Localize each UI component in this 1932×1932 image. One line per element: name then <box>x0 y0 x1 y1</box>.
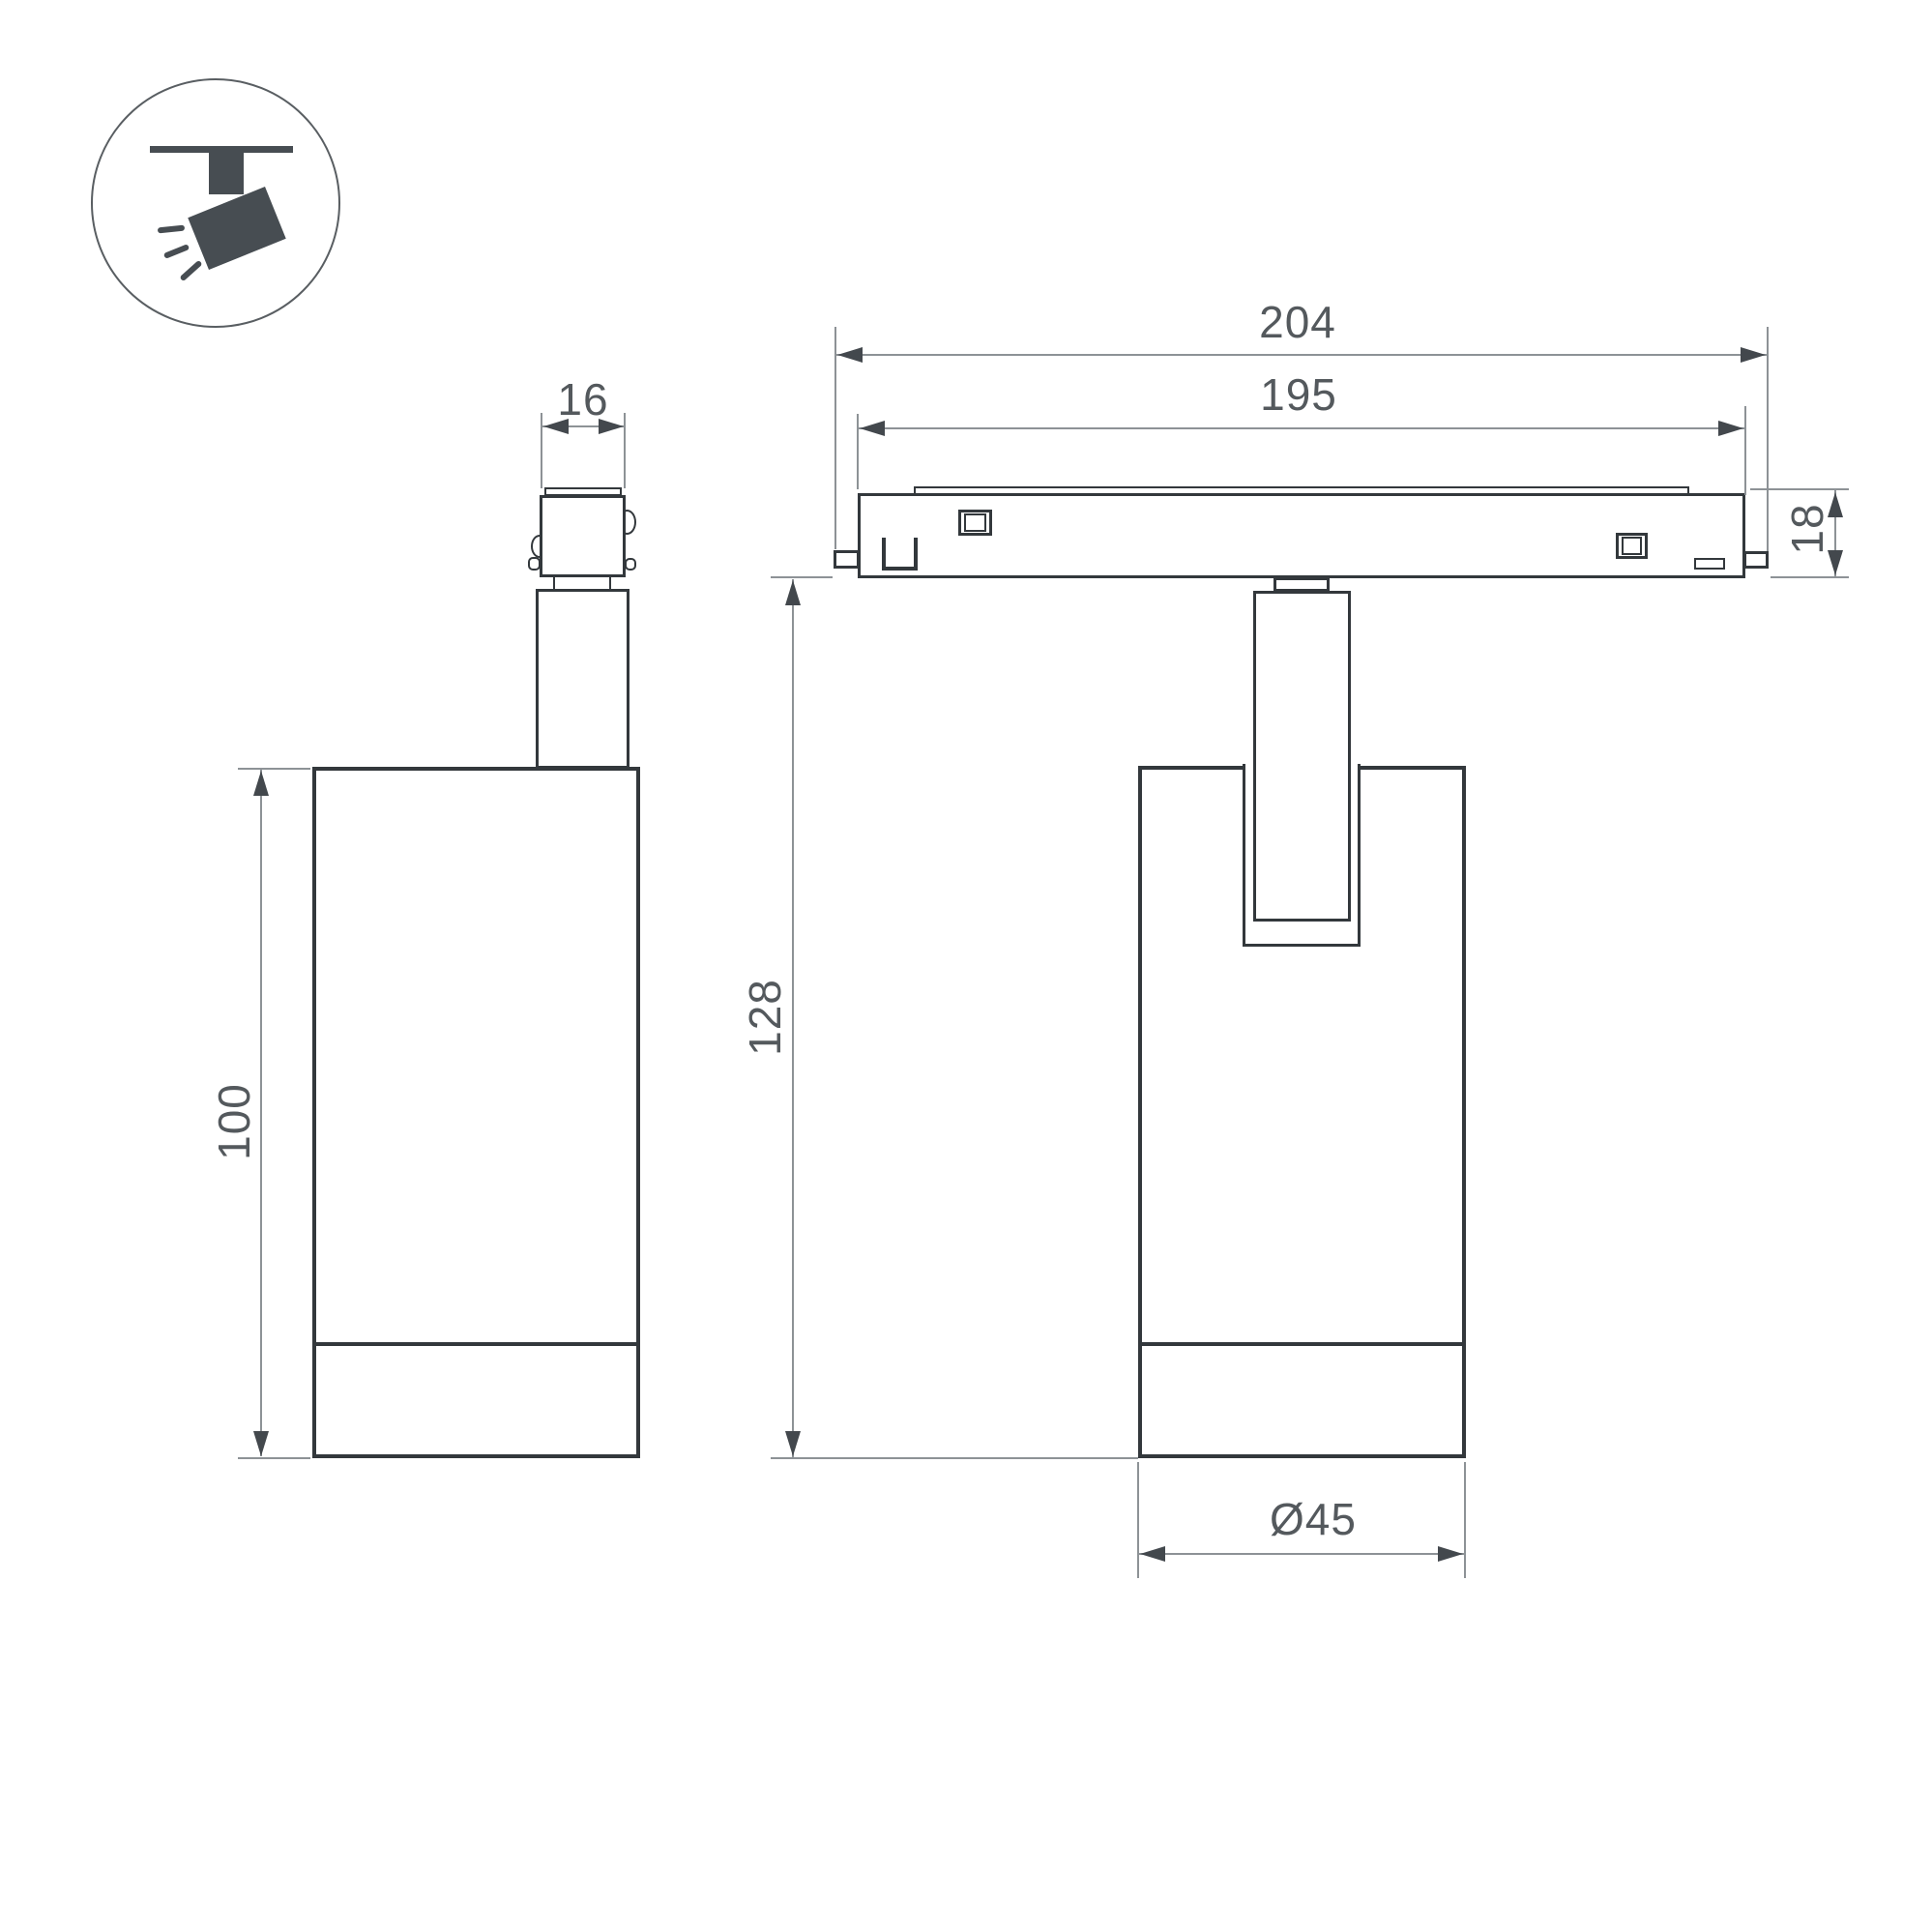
dim-label-total-height: 128 <box>743 979 787 1056</box>
track-spotlight-icon <box>91 78 340 328</box>
dim-label-track-outer-length: 204 <box>1220 300 1375 344</box>
dim-label-body-diameter: Ø45 <box>1236 1497 1390 1541</box>
front-view-track-slot <box>1694 558 1725 570</box>
front-view-stem <box>1253 591 1351 922</box>
dim-label-connector-width: 16 <box>546 377 620 422</box>
front-view-track-tab-left <box>834 550 860 569</box>
icon-track-stem <box>209 152 244 194</box>
front-view-track-tab-right <box>1743 551 1769 569</box>
side-view-lens-line <box>315 1342 637 1346</box>
dim-label-track-inner-length: 195 <box>1221 372 1376 417</box>
side-view-track-connector <box>540 495 626 577</box>
front-view-track-clip <box>882 538 918 571</box>
front-view-lens-line <box>1141 1342 1463 1346</box>
side-view-lamp-body <box>312 767 640 1458</box>
front-view-track-contact-left <box>958 510 992 536</box>
front-view-track-body <box>858 493 1745 578</box>
dim-label-track-height: 18 <box>1785 500 1830 558</box>
front-view-collar <box>1273 577 1330 592</box>
front-view-track-contact-right <box>1616 533 1648 559</box>
dim-label-body-height: 100 <box>212 1083 256 1160</box>
side-view-ear-right <box>625 558 636 571</box>
side-view-stem <box>536 589 629 769</box>
technical-drawing-canvas: 16 204 195 18 128 <box>0 0 1932 1932</box>
